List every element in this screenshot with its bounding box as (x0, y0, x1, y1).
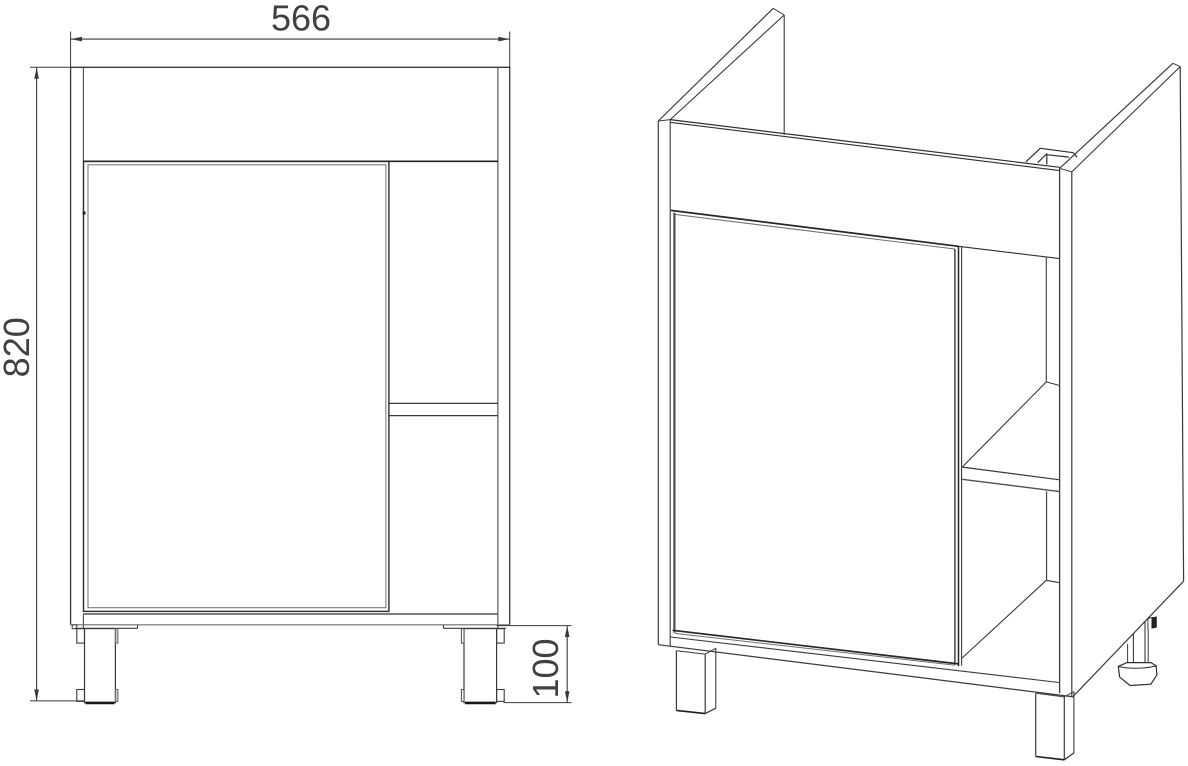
svg-text:566: 566 (271, 0, 331, 39)
svg-text:820: 820 (0, 317, 37, 377)
svg-text:100: 100 (525, 638, 566, 698)
